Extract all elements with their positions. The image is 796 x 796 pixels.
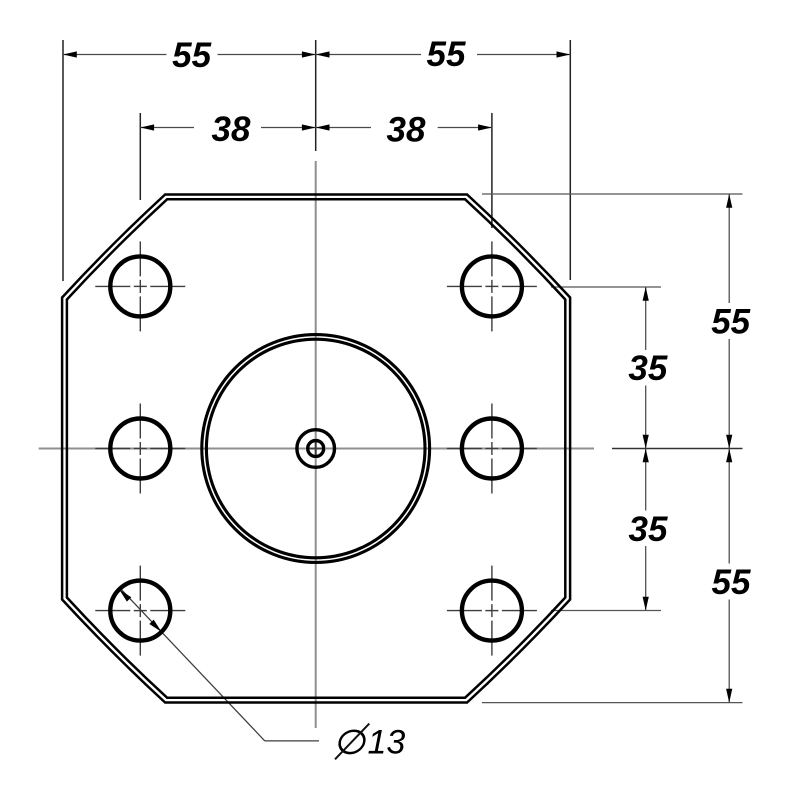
- svg-text:38: 38: [212, 110, 251, 149]
- svg-text:55: 55: [711, 303, 750, 342]
- svg-text:55: 55: [712, 563, 751, 602]
- svg-text:13: 13: [368, 724, 406, 762]
- svg-text:35: 35: [628, 349, 667, 388]
- svg-text:55: 55: [172, 36, 211, 75]
- svg-text:38: 38: [387, 111, 426, 150]
- svg-text:35: 35: [629, 510, 668, 549]
- svg-text:55: 55: [427, 35, 466, 74]
